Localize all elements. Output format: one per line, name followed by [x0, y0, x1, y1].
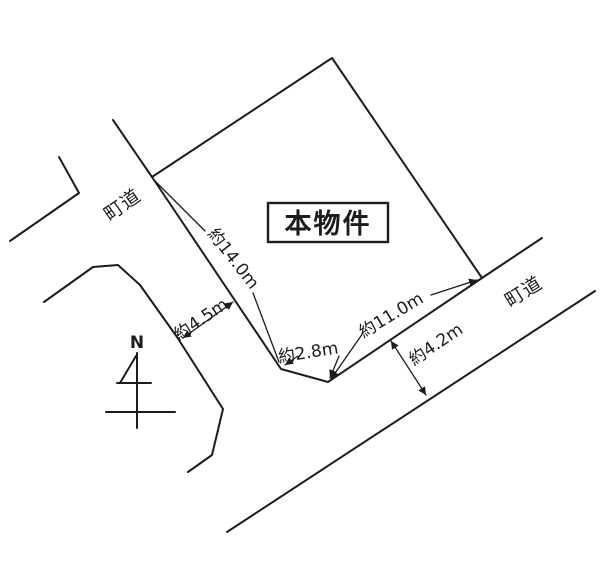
left-road-outer-edge — [44, 265, 223, 472]
property-label: 本物件 — [285, 209, 372, 240]
property-label-box: 本物件 — [268, 203, 388, 242]
measurement-west-road-width: 約4.5m — [170, 295, 231, 345]
leader-southeast-side-right — [431, 280, 477, 295]
site-plan-canvas: N 本物件 町道 町道 約14.0m 約4.5m 約2.8m 約11.0m 約4… — [0, 0, 600, 562]
right-road-label: 町道 — [501, 272, 547, 312]
left-road-corner-edge — [10, 157, 79, 241]
measurement-southeast-road-width: 約4.2m — [405, 320, 466, 370]
land-plot-diagram: N 本物件 町道 町道 約14.0m 約4.5m 約2.8m 約11.0m 約4… — [0, 0, 600, 562]
left-road-label: 町道 — [100, 185, 145, 226]
leader-northwest-side-top — [155, 181, 205, 231]
north-label: N — [130, 333, 144, 353]
north-arrow-diagonal — [120, 356, 136, 383]
measurement-northwest-side: 約14.0m — [203, 225, 263, 294]
measurement-southeast-side: 約11.0m — [356, 289, 428, 343]
north-arrow: N — [106, 333, 175, 428]
right-road-upper-edge — [482, 238, 542, 278]
measurement-south-side: 約2.8m — [277, 338, 340, 367]
left-road-inner-edge — [113, 120, 152, 177]
leader-northwest-side-bottom — [253, 293, 279, 362]
